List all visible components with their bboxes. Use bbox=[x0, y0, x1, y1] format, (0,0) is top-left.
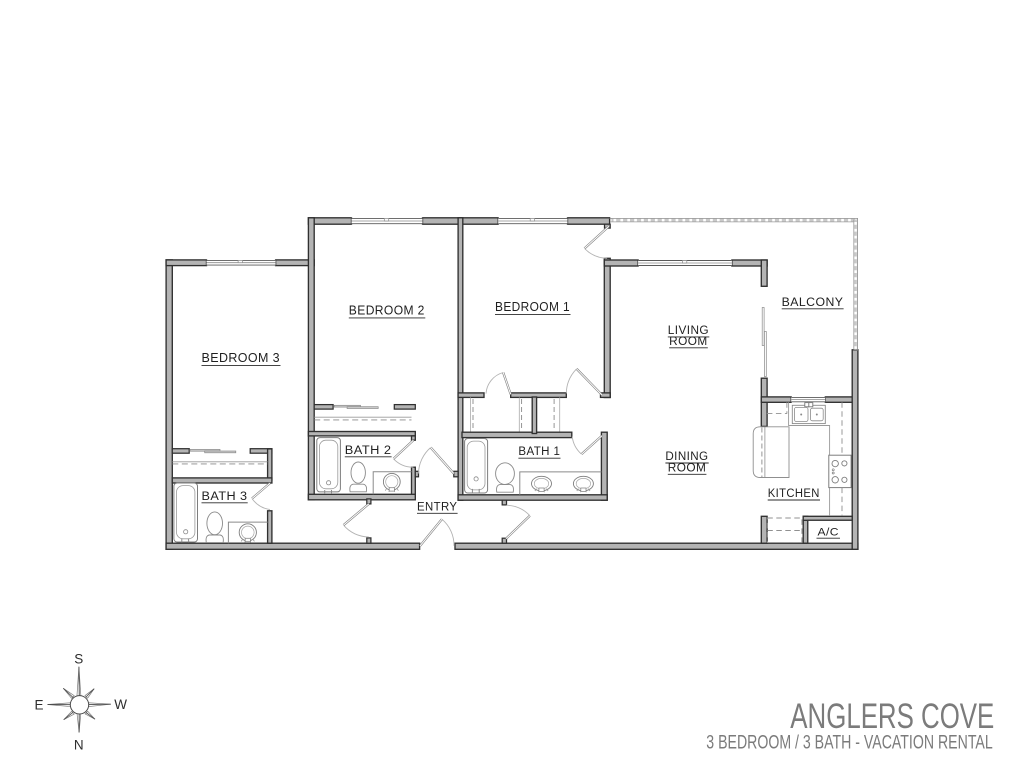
svg-text:ANGLERS COVE: ANGLERS COVE bbox=[790, 697, 994, 736]
svg-text:N: N bbox=[74, 738, 84, 753]
svg-text:BEDROOM 1: BEDROOM 1 bbox=[495, 300, 570, 314]
svg-text:ENTRY: ENTRY bbox=[417, 501, 457, 513]
svg-text:BATH 3: BATH 3 bbox=[202, 491, 248, 503]
svg-text:ROOM: ROOM bbox=[668, 462, 706, 474]
svg-text:W: W bbox=[114, 697, 127, 712]
svg-text:DINING: DINING bbox=[665, 451, 708, 463]
svg-text:E: E bbox=[34, 697, 43, 712]
svg-text:BATH 2: BATH 2 bbox=[345, 445, 392, 457]
svg-text:BATH 1: BATH 1 bbox=[518, 446, 560, 458]
svg-text:3 BEDROOM / 3 BATH - VACATION: 3 BEDROOM / 3 BATH - VACATION RENTAL bbox=[706, 732, 993, 754]
svg-text:A/C: A/C bbox=[818, 526, 840, 538]
svg-text:BALCONY: BALCONY bbox=[782, 297, 844, 309]
svg-text:BEDROOM 3: BEDROOM 3 bbox=[202, 351, 281, 365]
svg-text:KITCHEN: KITCHEN bbox=[768, 488, 820, 500]
svg-text:S: S bbox=[74, 652, 83, 667]
svg-text:ROOM: ROOM bbox=[669, 336, 707, 348]
svg-text:BEDROOM 2: BEDROOM 2 bbox=[349, 303, 425, 317]
